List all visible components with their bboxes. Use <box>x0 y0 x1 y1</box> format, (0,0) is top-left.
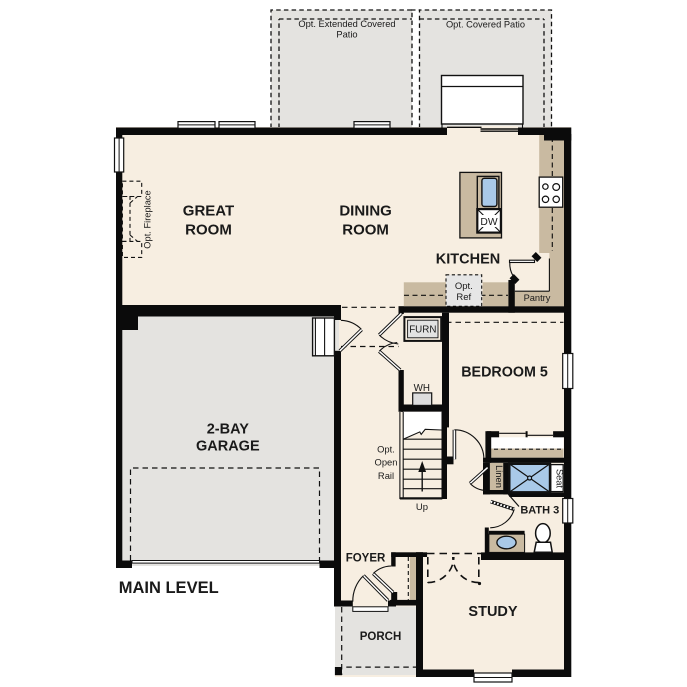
svg-text:BEDROOM 5: BEDROOM 5 <box>461 365 548 381</box>
svg-text:WH: WH <box>414 383 430 394</box>
svg-text:ROOM: ROOM <box>185 221 232 238</box>
svg-text:ROOM: ROOM <box>342 221 389 238</box>
svg-text:Rail: Rail <box>378 470 394 481</box>
svg-text:Linen: Linen <box>494 465 504 488</box>
svg-text:DW: DW <box>480 217 497 228</box>
svg-text:Opt.: Opt. <box>377 444 395 455</box>
svg-text:FURN: FURN <box>409 325 436 336</box>
svg-text:Opt.: Opt. <box>455 281 473 292</box>
svg-text:Seat: Seat <box>555 469 565 489</box>
svg-text:Opt. Fireplace: Opt. Fireplace <box>143 190 153 248</box>
svg-text:BATH 3: BATH 3 <box>520 505 559 517</box>
svg-text:MAIN LEVEL: MAIN LEVEL <box>119 579 219 597</box>
svg-text:Pantry: Pantry <box>524 293 551 303</box>
svg-text:Patio: Patio <box>336 30 357 40</box>
svg-text:KITCHEN: KITCHEN <box>436 252 500 268</box>
svg-text:Up: Up <box>416 502 428 513</box>
svg-text:STUDY: STUDY <box>468 604 517 620</box>
svg-text:Open: Open <box>375 457 398 468</box>
svg-text:PORCH: PORCH <box>360 631 402 643</box>
svg-text:GREAT: GREAT <box>183 203 234 220</box>
svg-text:Opt. Extended Covered: Opt. Extended Covered <box>298 19 395 29</box>
svg-text:Opt. Covered Patio: Opt. Covered Patio <box>446 20 525 30</box>
svg-text:DINING: DINING <box>339 203 392 220</box>
svg-text:GARAGE: GARAGE <box>196 439 260 455</box>
svg-text:Ref: Ref <box>456 292 471 303</box>
svg-text:FOYER: FOYER <box>346 553 386 565</box>
svg-text:2-BAY: 2-BAY <box>207 422 250 438</box>
